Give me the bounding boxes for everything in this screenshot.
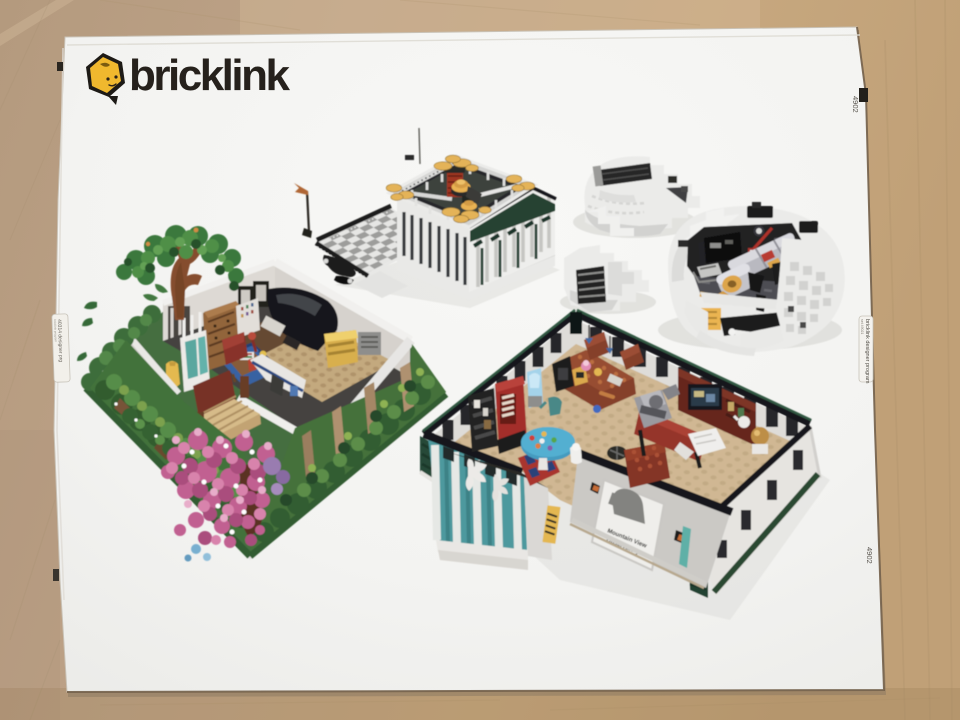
svg-text:4902: 4902 (851, 96, 860, 113)
svg-text:4902: 4902 (865, 547, 874, 564)
svg-text:bricklink program: bricklink program (53, 319, 58, 342)
svg-text:set 49021: set 49021 (860, 319, 864, 334)
svg-text:bricklink: bricklink (129, 51, 290, 100)
